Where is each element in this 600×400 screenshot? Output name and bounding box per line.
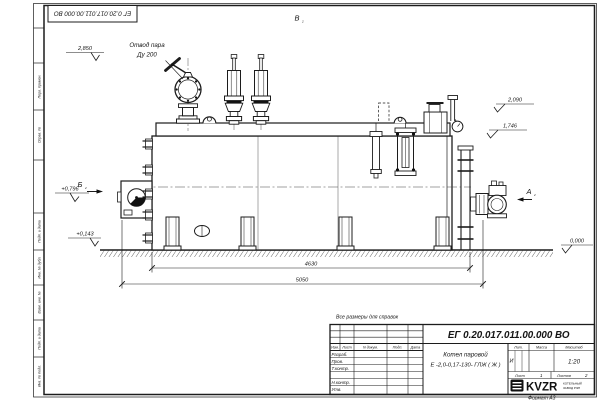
svg-text:2,850: 2,850 — [77, 46, 93, 52]
kvzr-logo-text: KVZR — [526, 382, 558, 394]
svg-text:1,746: 1,746 — [503, 124, 518, 130]
product-name-2: Е -2,0-0,17-130- ГЛЖ ( Ж ) — [430, 363, 500, 369]
svg-text:2,090: 2,090 — [507, 98, 523, 104]
product-name-1: Котел паровой — [443, 352, 488, 359]
view-label-b: Б 2 — [78, 180, 103, 194]
margin-label-perv: Перв. примен. — [38, 75, 42, 99]
left-wall-nozzles — [143, 139, 153, 243]
safety-valve — [252, 54, 271, 130]
support-leg — [434, 217, 451, 250]
svg-text:Б: Б — [78, 180, 83, 189]
drawing-number: ЕГ 0.20.017.011.00.000 ВО — [448, 330, 570, 341]
sheets-label: Листов — [556, 374, 571, 378]
margin-label-inv-podl: Инв. № подл. — [38, 365, 42, 387]
svg-text:Отвод пара: Отвод пара — [129, 42, 165, 49]
view-label-v: В 2 — [294, 14, 304, 24]
margin-label-podp2: Подп. и дата — [38, 327, 42, 350]
row-prov: Пров. — [332, 359, 344, 364]
svg-text:Ду 200: Ду 200 — [136, 52, 157, 59]
steam-outlet-callout: Отвод пара Ду 200 — [129, 42, 183, 79]
support-leg — [164, 217, 181, 250]
steam-stop-valve — [166, 58, 202, 131]
sheet-number: 1 — [540, 373, 543, 378]
reference-note: Все размеры для справок — [336, 315, 399, 321]
lit-value: И — [510, 359, 514, 365]
scale-value: 1:20 — [568, 359, 581, 366]
th-doc: N докум. — [363, 345, 378, 349]
sheet-label: Лист — [514, 374, 525, 378]
hidden-nozzle — [379, 103, 390, 123]
elevation-mark: +0,796 — [55, 187, 89, 202]
safety-valve — [225, 54, 244, 130]
svg-text:А: А — [525, 187, 531, 196]
scale-label: Масштаб — [565, 345, 583, 349]
nozzle-flange — [143, 165, 153, 175]
margin-label-inv-dubl: Инв. № дубл. — [38, 256, 42, 278]
row-razrab: Разраб. — [332, 352, 348, 357]
lifting-lug — [394, 117, 406, 123]
sheets-total: 2 — [584, 373, 588, 378]
format-label: Формат А3 — [528, 395, 556, 400]
feed-pump — [471, 181, 507, 218]
ground — [100, 250, 553, 257]
dim-inner-value: 4630 — [305, 262, 318, 268]
margin-label-sprav: Справ. № — [38, 127, 42, 143]
svg-text:В: В — [294, 14, 299, 23]
svg-text:2: 2 — [301, 20, 304, 24]
view-label-a: А 2 — [517, 187, 536, 202]
th-sign: Подп. — [393, 345, 403, 349]
valve-platform — [424, 103, 447, 133]
svg-text:2: 2 — [84, 186, 87, 190]
manhole — [195, 226, 210, 237]
svg-text:2: 2 — [533, 193, 536, 197]
th-date: Дата — [410, 345, 421, 349]
dim-outer-value: 5050 — [296, 278, 309, 284]
th-izm: Изм. — [331, 345, 339, 349]
elevation-mark: +0,143 — [68, 232, 101, 247]
row-nkontr: Н.контр. — [332, 380, 351, 385]
drawing-sheet: Перв. примен. Справ. № Подп. и дата Инв.… — [0, 0, 600, 400]
kvzr-logo-sub2: ЗАВОД РЭП — [563, 386, 580, 390]
kvzr-logo: KVZR КОТЕЛЬНЫЙ ЗАВОД РЭП — [511, 380, 582, 394]
corner-stamp-number: ЕГ 0.20.017.011.00.000 ВО — [54, 10, 131, 17]
lifting-lug — [203, 117, 216, 123]
support-leg — [337, 217, 354, 250]
svg-text:+0,143: +0,143 — [76, 232, 94, 238]
row-utv: Утв. — [332, 387, 342, 392]
svg-text:0,000: 0,000 — [570, 239, 585, 245]
th-list: Лист — [341, 345, 352, 349]
elevation-mark: 1,746 — [487, 124, 527, 139]
pump-motor — [488, 195, 507, 214]
nozzle-flange — [143, 139, 153, 149]
elevation-mark: 0,000 — [561, 239, 593, 254]
margin-label-vzam: Взам. инв. № — [38, 291, 42, 313]
nozzle-flange — [143, 233, 153, 243]
title-block: Изм. Лист N докум. Подп. Дата Разраб. Пр… — [330, 325, 595, 395]
lit-label: Лит. — [513, 345, 523, 349]
boiler-drawing — [100, 54, 553, 257]
support-leg — [239, 217, 256, 250]
kvzr-logo-sub1: КОТЕЛЬНЫЙ — [563, 382, 582, 386]
margin-label-podp1: Подп. и дата — [38, 220, 42, 243]
row-tkontr: Т.контр. — [332, 366, 350, 371]
elevation-mark: 2,090 — [494, 98, 534, 113]
mass-label: Масса — [536, 345, 547, 349]
elevation-mark: 2,850 — [66, 46, 104, 61]
